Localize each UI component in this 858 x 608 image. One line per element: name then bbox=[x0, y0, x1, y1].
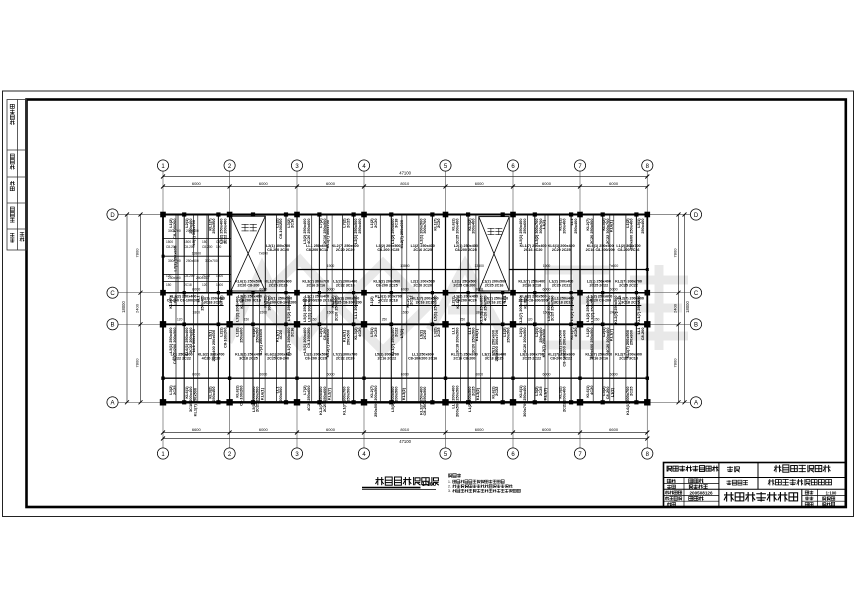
svg-text:250x400: 250x400 bbox=[640, 219, 645, 234]
svg-text:8010: 8010 bbox=[400, 181, 410, 186]
svg-text:7x600: 7x600 bbox=[609, 264, 618, 268]
svg-text:C8-200 2C25: C8-200 2C25 bbox=[376, 284, 398, 288]
svg-text:4C20 200x500: 4C20 200x500 bbox=[522, 328, 527, 354]
svg-text:6000: 6000 bbox=[475, 427, 485, 432]
svg-text:6000: 6000 bbox=[192, 288, 200, 292]
svg-text:KL2(7): KL2(7) bbox=[327, 387, 332, 400]
svg-text:LL1 200x500: LL1 200x500 bbox=[353, 296, 358, 319]
svg-text:2C16 3C18: 2C16 3C18 bbox=[522, 284, 541, 288]
svg-text:KL6(1): KL6(1) bbox=[474, 328, 479, 341]
svg-text:200x400: 200x400 bbox=[471, 219, 476, 234]
svg-text:KL1(7) 250x500: KL1(7) 250x500 bbox=[192, 388, 197, 416]
svg-text:1:100: 1:100 bbox=[826, 490, 837, 495]
svg-text:150: 150 bbox=[244, 318, 250, 322]
svg-text:C8-200: C8-200 bbox=[184, 245, 195, 249]
svg-text:6000: 6000 bbox=[326, 181, 336, 186]
svg-text:1500: 1500 bbox=[184, 240, 191, 244]
svg-text:250x500: 250x500 bbox=[211, 219, 216, 234]
svg-text:KL1(7): KL1(7) bbox=[608, 328, 613, 341]
svg-text:2C22 3C18: 2C22 3C18 bbox=[379, 299, 398, 303]
svg-text:2C20 C8-200: 2C20 C8-200 bbox=[238, 284, 260, 288]
svg-text:7800: 7800 bbox=[672, 358, 677, 368]
svg-text:2C25 C8-200: 2C25 C8-200 bbox=[267, 357, 289, 361]
svg-text:47100: 47100 bbox=[399, 171, 411, 176]
svg-text:1500: 1500 bbox=[216, 283, 223, 287]
svg-text:4C20: 4C20 bbox=[357, 328, 362, 337]
svg-text:2400: 2400 bbox=[610, 310, 618, 314]
svg-text:200x400: 200x400 bbox=[186, 229, 199, 233]
svg-text:L7(2) 250x400: L7(2) 250x400 bbox=[286, 296, 291, 322]
svg-text:7800: 7800 bbox=[672, 248, 677, 258]
svg-text:4C20: 4C20 bbox=[589, 386, 594, 395]
svg-text:2C25: 2C25 bbox=[172, 385, 177, 395]
svg-text:13800: 13800 bbox=[474, 264, 484, 268]
svg-text:6000: 6000 bbox=[259, 288, 267, 292]
svg-text:4C20 2C20: 4C20 2C20 bbox=[202, 357, 221, 361]
svg-text:C8-200 250x500: C8-200 250x500 bbox=[422, 387, 427, 416]
svg-text:C8-200 2C25: C8-200 2C25 bbox=[455, 248, 477, 252]
svg-text:2C25 2C22: 2C25 2C22 bbox=[522, 357, 541, 361]
svg-text:2C20 2C25: 2C20 2C25 bbox=[552, 248, 571, 252]
svg-text:2C25 250x500: 2C25 250x500 bbox=[550, 296, 555, 322]
svg-text:L5(1) 250x600: L5(1) 250x600 bbox=[432, 296, 437, 322]
svg-text:C8-200: C8-200 bbox=[216, 240, 227, 244]
svg-text:C8-100/200 2C16: C8-100/200 2C16 bbox=[408, 357, 437, 361]
svg-text:L2(1): L2(1) bbox=[451, 296, 456, 306]
svg-text:KL3(2): KL3(2) bbox=[401, 387, 406, 400]
svg-text:300x700: 300x700 bbox=[168, 259, 181, 263]
svg-text:6000: 6000 bbox=[542, 181, 552, 186]
svg-text:1:100: 1:100 bbox=[422, 482, 436, 488]
svg-text:2C25 2C25: 2C25 2C25 bbox=[269, 284, 288, 288]
svg-text:6000: 6000 bbox=[610, 288, 618, 292]
svg-text:4C20: 4C20 bbox=[573, 328, 578, 337]
svg-text:250x400: 250x400 bbox=[357, 219, 362, 234]
svg-text:6000: 6000 bbox=[327, 372, 335, 376]
svg-text:2C18: 2C18 bbox=[184, 283, 192, 287]
svg-text:250x500 200x500: 250x500 200x500 bbox=[373, 386, 378, 417]
svg-text:250x600: 250x600 bbox=[629, 330, 634, 345]
svg-text:KL6(1): KL6(1) bbox=[259, 387, 264, 400]
svg-text:250x400: 250x400 bbox=[196, 276, 209, 280]
svg-text:1500: 1500 bbox=[401, 310, 409, 314]
svg-text:L7(2) 250x400: L7(2) 250x400 bbox=[258, 329, 263, 355]
svg-text:150: 150 bbox=[202, 240, 208, 244]
svg-text:18000: 18000 bbox=[121, 301, 126, 313]
svg-text:250x400: 250x400 bbox=[573, 219, 578, 234]
svg-text:7800: 7800 bbox=[134, 248, 139, 258]
svg-text:6000: 6000 bbox=[401, 372, 409, 376]
svg-text:2C22 3C18: 2C22 3C18 bbox=[336, 284, 355, 288]
svg-text:2C25: 2C25 bbox=[373, 327, 378, 337]
svg-text:150: 150 bbox=[311, 318, 317, 322]
svg-text:KL1(7): KL1(7) bbox=[168, 296, 173, 309]
svg-text:1500: 1500 bbox=[216, 274, 223, 278]
svg-text:2C25: 2C25 bbox=[629, 386, 634, 396]
svg-text:C: C bbox=[110, 291, 115, 297]
svg-text:13800: 13800 bbox=[400, 264, 410, 268]
svg-text:B: B bbox=[694, 323, 698, 329]
svg-text:L7(2): L7(2) bbox=[219, 295, 224, 305]
svg-text:C8-100/200: C8-100/200 bbox=[278, 219, 283, 239]
svg-text:2C20 250x500: 2C20 250x500 bbox=[589, 219, 594, 245]
svg-text:LL1 300x700: LL1 300x700 bbox=[191, 329, 196, 352]
svg-text:300x700: 300x700 bbox=[168, 229, 181, 233]
svg-text:300x700: 300x700 bbox=[205, 259, 218, 263]
svg-text:KL1(7): KL1(7) bbox=[543, 387, 548, 400]
svg-text:6600: 6600 bbox=[192, 427, 202, 432]
svg-text:18000: 18000 bbox=[685, 301, 690, 313]
svg-text:250x600: 250x600 bbox=[522, 219, 527, 234]
svg-text:1900: 1900 bbox=[543, 264, 551, 268]
svg-text:6000: 6000 bbox=[610, 372, 618, 376]
svg-text:2C16 4C20: 2C16 4C20 bbox=[524, 248, 543, 252]
svg-text:1800: 1800 bbox=[475, 310, 483, 314]
svg-text:D: D bbox=[110, 213, 115, 219]
svg-text:C8-200 2C20: C8-200 2C20 bbox=[305, 357, 327, 361]
svg-text:C8-200: C8-200 bbox=[184, 274, 195, 278]
svg-text:C8-200: C8-200 bbox=[640, 328, 645, 341]
svg-text:C8-200: C8-200 bbox=[202, 245, 213, 249]
svg-text:KL6(1): KL6(1) bbox=[608, 219, 613, 232]
svg-text:6000: 6000 bbox=[543, 288, 551, 292]
svg-text:2C22 200x400: 2C22 200x400 bbox=[561, 387, 566, 413]
svg-text:2C25: 2C25 bbox=[436, 327, 441, 337]
svg-text:6000: 6000 bbox=[543, 372, 551, 376]
svg-text:7800: 7800 bbox=[134, 358, 139, 368]
svg-text:C8-100/200 200x400: C8-100/200 200x400 bbox=[561, 330, 566, 367]
svg-text:200x400: 200x400 bbox=[561, 219, 566, 234]
svg-text:300x700: 300x700 bbox=[267, 296, 272, 311]
svg-text:2C22: 2C22 bbox=[494, 386, 499, 396]
svg-text:4C20: 4C20 bbox=[278, 330, 283, 339]
svg-text:200x500: 200x500 bbox=[278, 387, 283, 402]
svg-text:300x700 250x400: 300x700 250x400 bbox=[522, 386, 527, 417]
svg-text:250x600: 250x600 bbox=[238, 328, 243, 343]
svg-text:250: 250 bbox=[594, 318, 600, 322]
svg-text:3.: 3. bbox=[448, 489, 451, 493]
svg-text:6000: 6000 bbox=[542, 427, 552, 432]
svg-text:250: 250 bbox=[382, 318, 388, 322]
svg-text:2C16 2C16: 2C16 2C16 bbox=[589, 357, 608, 361]
svg-text:2400: 2400 bbox=[134, 303, 139, 313]
svg-text:3C18: 3C18 bbox=[394, 218, 399, 228]
svg-text:C8-100/200: C8-100/200 bbox=[306, 328, 311, 348]
svg-text:13800: 13800 bbox=[192, 252, 202, 256]
svg-text:L1(2): L1(2) bbox=[369, 296, 374, 306]
svg-text:6000: 6000 bbox=[401, 288, 409, 292]
svg-text:6000: 6000 bbox=[259, 181, 269, 186]
svg-text:2C20: 2C20 bbox=[373, 219, 378, 228]
svg-text:L5(1) 250x400: L5(1) 250x400 bbox=[302, 297, 307, 323]
svg-text:3C18: 3C18 bbox=[617, 295, 622, 305]
svg-text:250x500: 250x500 bbox=[345, 387, 350, 402]
svg-text:2C22 3C18: 2C22 3C18 bbox=[619, 357, 638, 361]
svg-text:2C22 2C20: 2C22 2C20 bbox=[336, 357, 355, 361]
svg-text:250x500: 250x500 bbox=[168, 276, 181, 280]
svg-text:6000: 6000 bbox=[327, 288, 335, 292]
svg-text:47100: 47100 bbox=[399, 439, 411, 444]
svg-text:2C16 C8-100/200: 2C16 C8-100/200 bbox=[586, 248, 615, 252]
svg-text:6000: 6000 bbox=[326, 427, 336, 432]
svg-text:2C16 2C22: 2C16 2C22 bbox=[377, 357, 396, 361]
svg-text:2C20: 2C20 bbox=[422, 330, 427, 339]
svg-text:2C25: 2C25 bbox=[345, 218, 350, 228]
svg-text:2C20 2C20: 2C20 2C20 bbox=[336, 248, 355, 252]
svg-text:6000: 6000 bbox=[475, 288, 483, 292]
svg-text:2C20 2C20: 2C20 2C20 bbox=[413, 284, 432, 288]
svg-text:250x400: 250x400 bbox=[199, 296, 204, 311]
svg-text:1500: 1500 bbox=[327, 310, 335, 314]
svg-text:2.: 2. bbox=[448, 485, 451, 489]
svg-text:L7(2): L7(2) bbox=[399, 328, 404, 338]
svg-text:120: 120 bbox=[216, 245, 222, 249]
svg-text:120: 120 bbox=[527, 318, 533, 322]
svg-text:2C25 200x400: 2C25 200x400 bbox=[454, 219, 459, 245]
svg-text:2C22: 2C22 bbox=[409, 295, 414, 305]
svg-text:C8-200 2C16: C8-200 2C16 bbox=[618, 248, 640, 252]
svg-text:A: A bbox=[694, 401, 698, 407]
svg-text:2C25 C8-200: 2C25 C8-200 bbox=[453, 284, 475, 288]
svg-text:2C22 2C22: 2C22 2C22 bbox=[172, 357, 191, 361]
svg-text:1.: 1. bbox=[448, 480, 451, 484]
svg-text:250x500: 250x500 bbox=[345, 330, 350, 345]
svg-text:L1(2) 250x500: L1(2) 250x500 bbox=[585, 297, 590, 323]
svg-text:B: B bbox=[110, 323, 114, 329]
svg-text:2400: 2400 bbox=[672, 303, 677, 313]
svg-text:2C22: 2C22 bbox=[394, 327, 399, 337]
svg-text:1800: 1800 bbox=[193, 310, 201, 314]
svg-text:3C18 200x500: 3C18 200x500 bbox=[454, 328, 459, 354]
svg-text:250x500: 250x500 bbox=[506, 328, 511, 343]
svg-text:KL3(2): KL3(2) bbox=[475, 387, 480, 400]
svg-text:6000: 6000 bbox=[259, 427, 269, 432]
svg-text:KL2(7) 200x400: KL2(7) 200x400 bbox=[518, 297, 523, 325]
svg-text:2C20 250x500: 2C20 250x500 bbox=[334, 296, 339, 322]
svg-text:KL3(2): KL3(2) bbox=[522, 296, 527, 309]
svg-text:6000: 6000 bbox=[475, 181, 485, 186]
svg-text:2C25 2C22: 2C25 2C22 bbox=[619, 284, 638, 288]
svg-text:3C18 2C25: 3C18 2C25 bbox=[239, 357, 258, 361]
svg-text:300x700: 300x700 bbox=[422, 219, 427, 234]
svg-text:KL1(7): KL1(7) bbox=[455, 296, 460, 309]
svg-text:250x500: 250x500 bbox=[186, 259, 199, 263]
svg-text:KL3(2): KL3(2) bbox=[239, 296, 244, 309]
svg-text:KL1(7) 250x400: KL1(7) 250x400 bbox=[636, 296, 641, 324]
svg-text:4C20 250x600: 4C20 250x600 bbox=[306, 219, 311, 245]
svg-text:6600: 6600 bbox=[609, 427, 619, 432]
svg-text:2C16 C8-200: 2C16 C8-200 bbox=[453, 357, 475, 361]
svg-text:C: C bbox=[694, 291, 699, 297]
svg-text:L1(2): L1(2) bbox=[610, 387, 615, 397]
svg-text:6000: 6000 bbox=[475, 372, 483, 376]
svg-text:2C16 2C25: 2C16 2C25 bbox=[413, 248, 432, 252]
svg-text:C8-100/200: C8-100/200 bbox=[222, 328, 227, 348]
svg-text:C8-100/200: C8-100/200 bbox=[238, 386, 243, 406]
svg-text:4C20 250x600: 4C20 250x600 bbox=[306, 386, 311, 412]
svg-text:C8-200 2C22: C8-200 2C22 bbox=[550, 357, 572, 361]
svg-text:6000: 6000 bbox=[192, 181, 202, 186]
svg-text:2C25 2C16: 2C25 2C16 bbox=[485, 284, 504, 288]
svg-text:L7(2) 200x400: L7(2) 200x400 bbox=[235, 297, 240, 323]
svg-text:1900: 1900 bbox=[327, 264, 335, 268]
svg-text:120: 120 bbox=[202, 283, 208, 287]
svg-text:1500: 1500 bbox=[543, 310, 551, 314]
svg-text:LL1: LL1 bbox=[502, 295, 507, 303]
svg-text:1500: 1500 bbox=[260, 310, 268, 314]
svg-text:2C16 2C16: 2C16 2C16 bbox=[306, 284, 325, 288]
svg-text:6000: 6000 bbox=[609, 181, 619, 186]
svg-text:2C25 2C22: 2C25 2C22 bbox=[589, 284, 608, 288]
svg-text:C8-200 2C20: C8-200 2C20 bbox=[267, 248, 289, 252]
svg-text:2C16: 2C16 bbox=[290, 327, 295, 337]
svg-text:2C25 2C22: 2C25 2C22 bbox=[552, 284, 571, 288]
svg-text:1500: 1500 bbox=[166, 240, 173, 244]
svg-text:6000: 6000 bbox=[259, 372, 267, 376]
svg-text:L1(2): L1(2) bbox=[541, 219, 546, 229]
svg-text:L2(1): L2(1) bbox=[172, 296, 177, 306]
svg-text:A: A bbox=[110, 401, 114, 407]
svg-text:C8-200 2C25: C8-200 2C25 bbox=[377, 248, 399, 252]
svg-text:3C18 2C25: 3C18 2C25 bbox=[485, 357, 504, 361]
svg-text:8010: 8010 bbox=[400, 427, 410, 432]
svg-text:200x500: 200x500 bbox=[394, 387, 399, 402]
svg-text:2C20: 2C20 bbox=[436, 219, 441, 228]
svg-text:C8-200 3C18: C8-200 3C18 bbox=[306, 248, 328, 252]
svg-text:250x400: 250x400 bbox=[211, 387, 216, 402]
svg-text:150: 150 bbox=[166, 283, 172, 287]
svg-text:4C20 250x500: 4C20 250x500 bbox=[482, 296, 487, 322]
svg-text:C8-200: C8-200 bbox=[166, 245, 177, 249]
svg-text:D: D bbox=[694, 213, 699, 219]
svg-text:LL1: LL1 bbox=[376, 296, 381, 304]
svg-text:200508126: 200508126 bbox=[690, 491, 713, 496]
svg-text:250: 250 bbox=[460, 318, 466, 322]
svg-text:L1(2) 250x400: L1(2) 250x400 bbox=[569, 296, 574, 322]
svg-text:6000: 6000 bbox=[192, 372, 200, 376]
svg-text:2C16: 2C16 bbox=[290, 218, 295, 228]
svg-text:120: 120 bbox=[177, 318, 183, 322]
svg-text:200x500 250x500: 200x500 250x500 bbox=[454, 386, 459, 417]
